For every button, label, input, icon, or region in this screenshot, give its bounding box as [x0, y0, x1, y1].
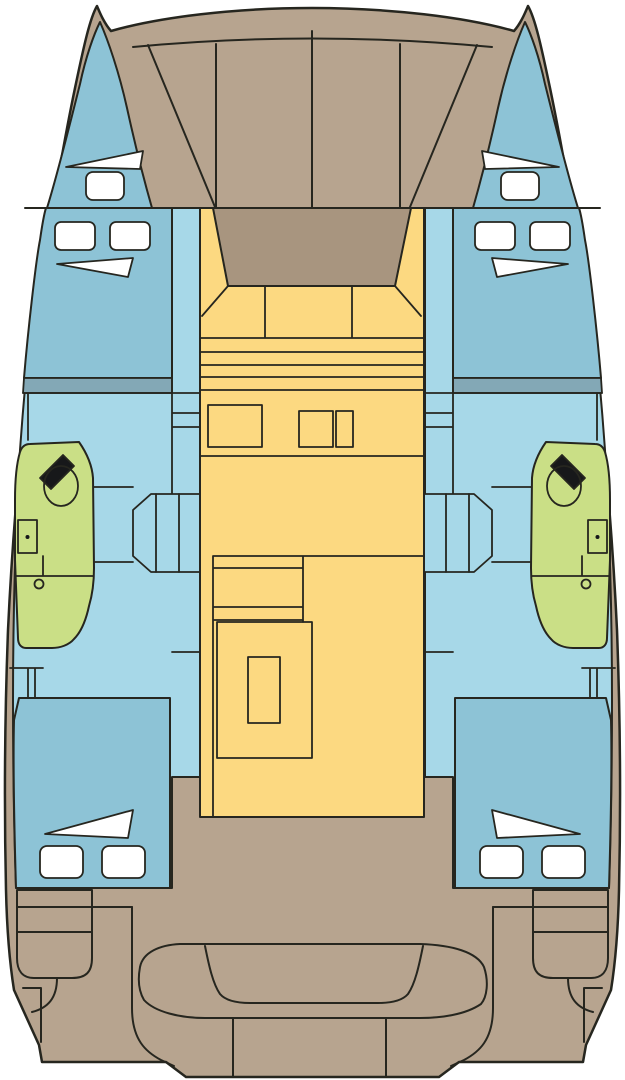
boat-plan	[5, 6, 620, 1077]
head-sink-drain	[26, 535, 30, 539]
port-aft-berth	[14, 698, 170, 888]
boat-plan-canvas	[0, 0, 625, 1080]
helm-console	[213, 208, 411, 286]
aft-berth-hatch-icon	[102, 846, 145, 878]
forward-berth-hatch-icon	[110, 222, 150, 250]
aft-berth-hatch-icon	[40, 846, 83, 878]
port-forward-berth-step	[23, 378, 172, 393]
salon	[200, 208, 424, 817]
forward-berth-hatch-icon	[55, 222, 95, 250]
bow-hatch-icon	[86, 172, 124, 200]
catamaran-layout-svg	[0, 0, 625, 1080]
